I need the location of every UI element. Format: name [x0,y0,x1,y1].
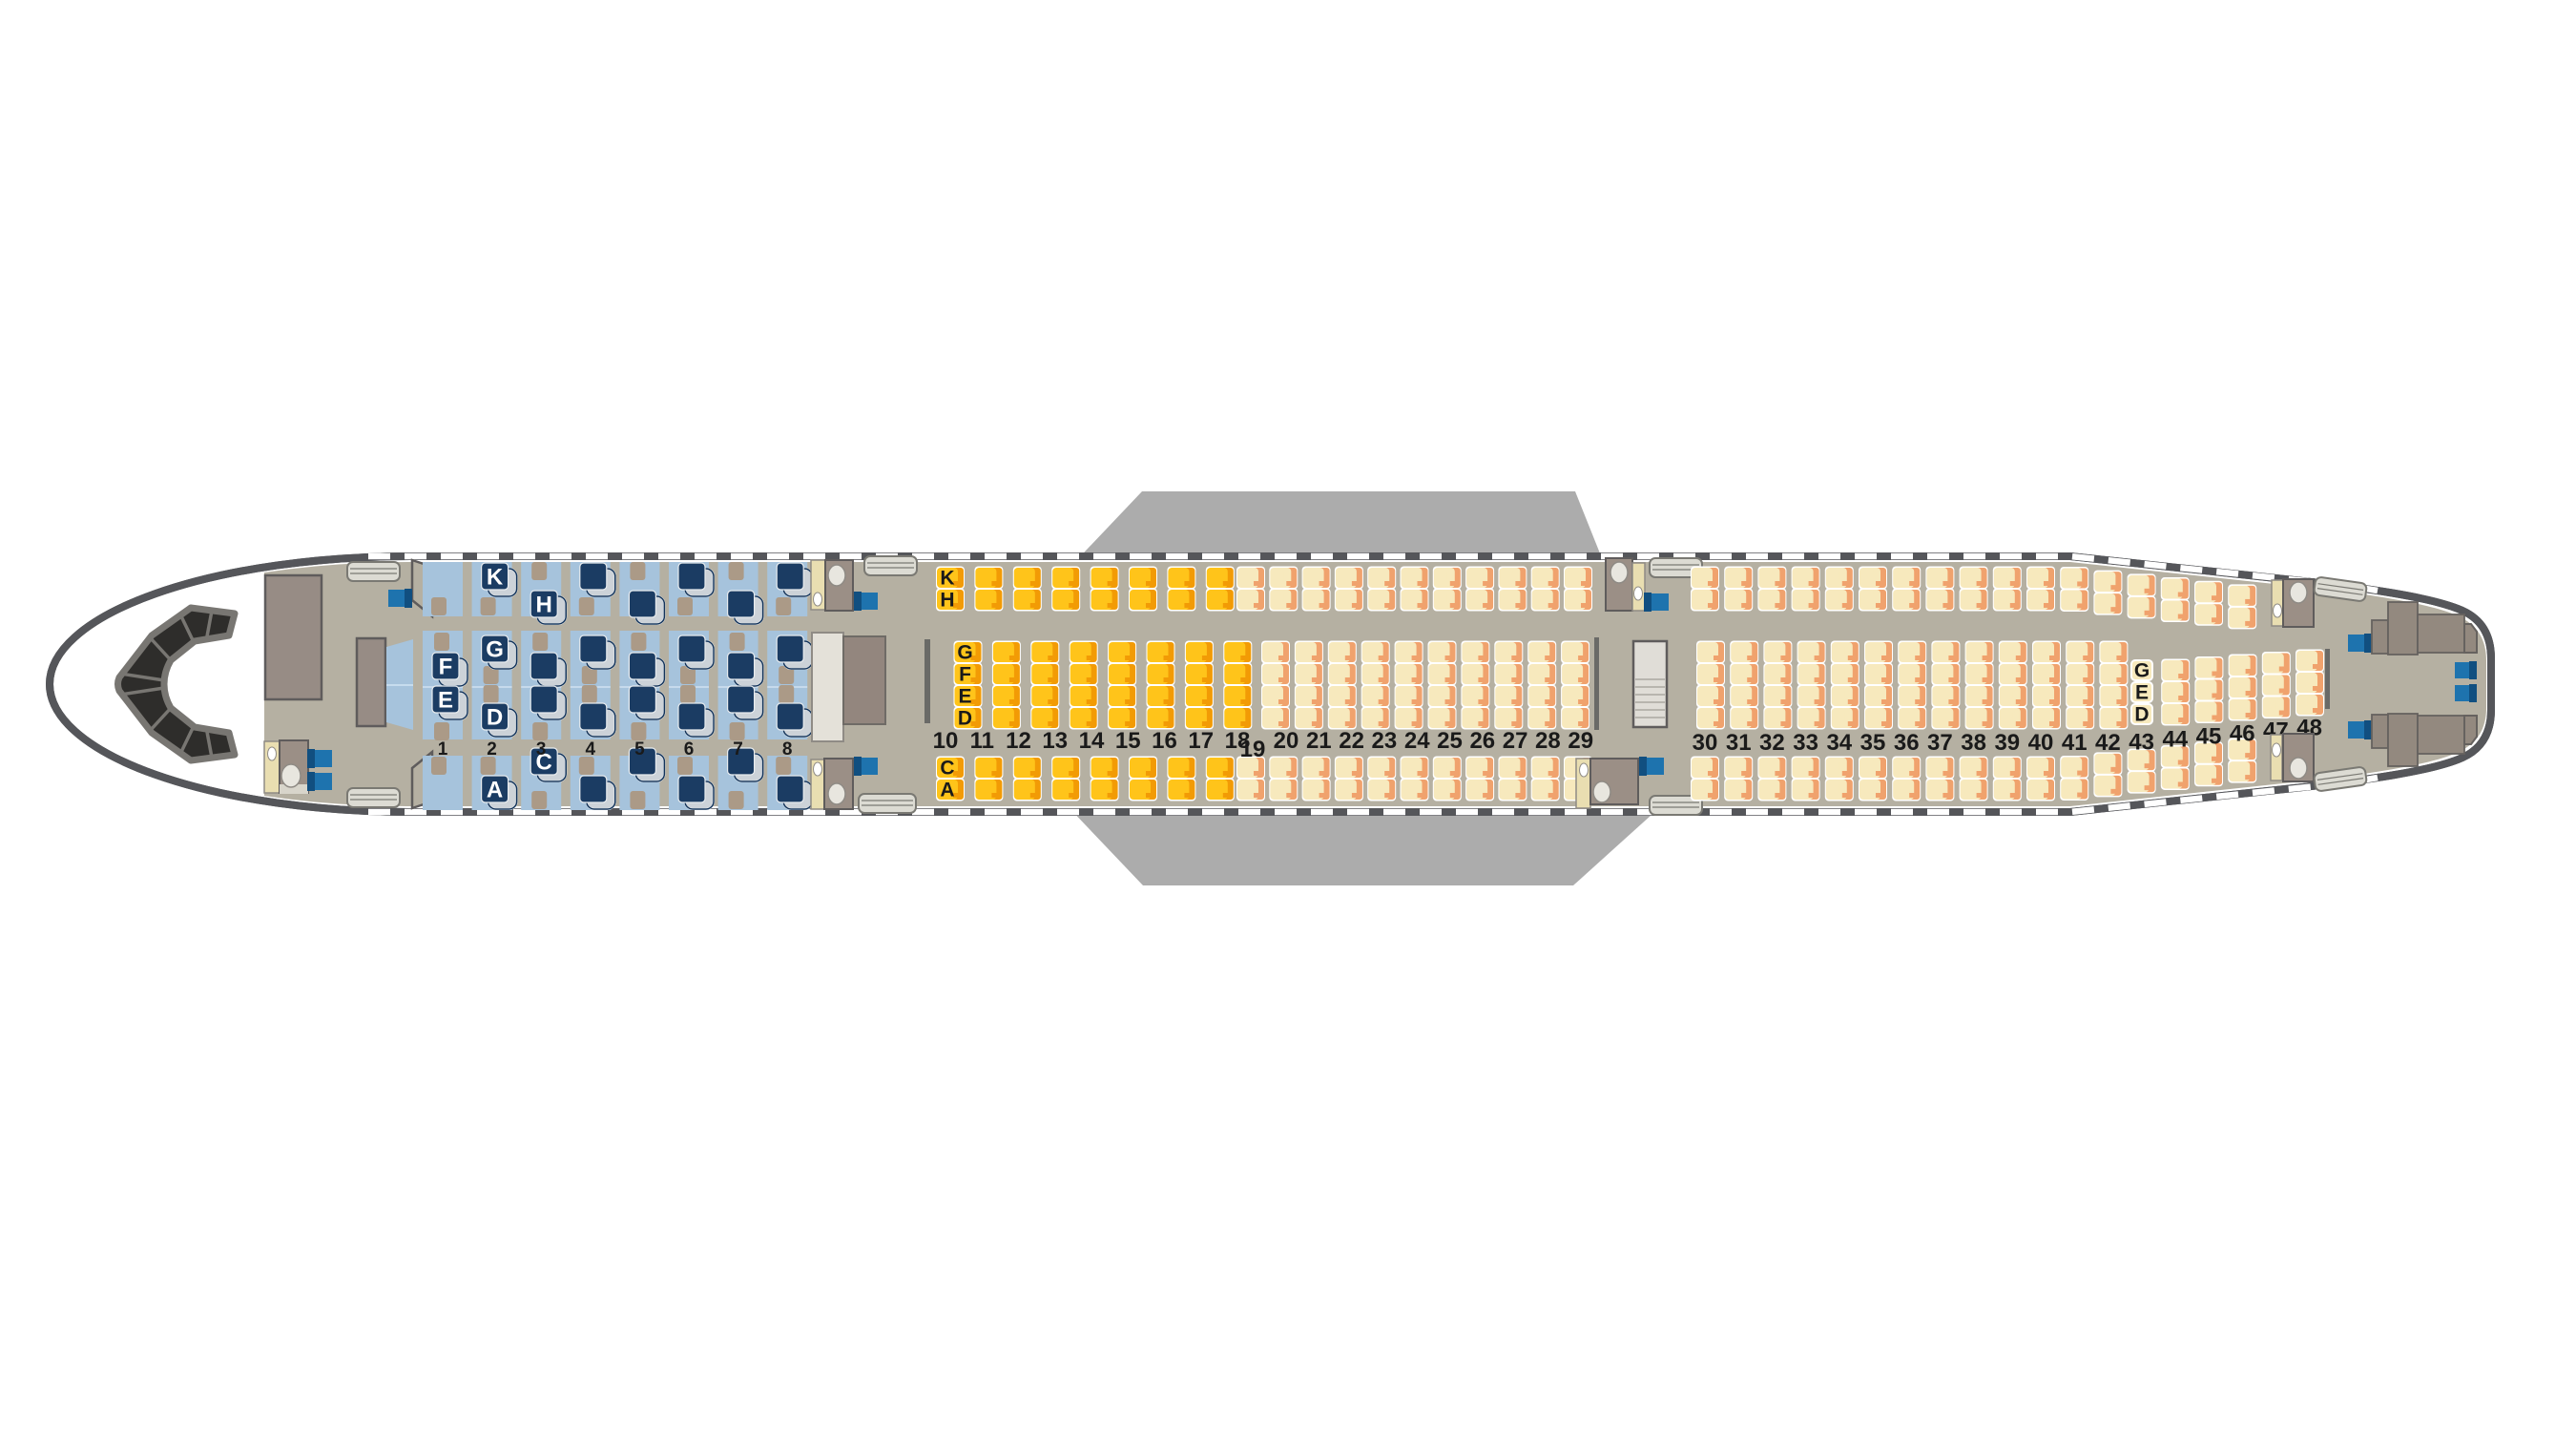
svg-text:6: 6 [684,739,695,760]
svg-text:15: 15 [1115,728,1141,754]
svg-text:G: G [2134,660,2150,682]
svg-text:E: E [2135,682,2149,704]
svg-text:4: 4 [586,739,596,760]
svg-text:C: C [940,758,954,780]
svg-text:35: 35 [1860,730,1886,756]
svg-text:33: 33 [1793,730,1818,756]
svg-text:23: 23 [1372,728,1398,754]
svg-text:H: H [940,590,954,612]
svg-text:5: 5 [634,739,645,760]
svg-text:H: H [536,593,552,618]
svg-text:D: D [958,708,972,730]
svg-text:16: 16 [1152,728,1177,754]
svg-text:A: A [487,778,503,803]
svg-text:A: A [940,780,954,801]
svg-text:F: F [959,664,971,686]
svg-text:26: 26 [1469,728,1495,754]
svg-text:K: K [940,568,954,590]
svg-text:44: 44 [2162,727,2188,753]
svg-text:11: 11 [970,728,994,754]
svg-text:27: 27 [1503,728,1528,754]
svg-text:K: K [487,565,504,591]
svg-text:7: 7 [733,739,743,760]
svg-text:G: G [957,642,972,664]
svg-text:30: 30 [1693,730,1718,756]
svg-text:20: 20 [1274,728,1299,754]
svg-text:46: 46 [2230,721,2255,747]
svg-text:3: 3 [536,739,547,760]
svg-text:43: 43 [2129,730,2154,756]
svg-text:31: 31 [1726,730,1752,756]
svg-text:22: 22 [1339,728,1364,754]
svg-text:41: 41 [2062,730,2088,756]
svg-text:40: 40 [2028,730,2054,756]
svg-text:28: 28 [1535,728,1561,754]
svg-text:17: 17 [1188,728,1214,754]
svg-text:24: 24 [1404,728,1430,754]
svg-text:E: E [438,688,453,714]
svg-text:29: 29 [1568,728,1593,754]
svg-text:1: 1 [438,739,448,760]
svg-text:E: E [958,686,971,708]
svg-text:38: 38 [1961,730,1986,756]
svg-text:13: 13 [1042,728,1068,754]
svg-text:21: 21 [1306,728,1332,754]
svg-text:10: 10 [933,728,959,754]
svg-text:G: G [486,637,504,663]
svg-text:36: 36 [1894,730,1920,756]
svg-text:25: 25 [1437,728,1463,754]
svg-text:D: D [487,705,503,731]
svg-text:14: 14 [1079,728,1105,754]
svg-text:2: 2 [487,739,497,760]
svg-text:8: 8 [782,739,793,760]
svg-text:39: 39 [1994,730,2020,756]
svg-text:D: D [2134,704,2149,726]
svg-text:32: 32 [1759,730,1785,756]
svg-text:37: 37 [1927,730,1953,756]
svg-text:34: 34 [1826,730,1852,756]
svg-text:F: F [439,655,453,680]
svg-text:45: 45 [2196,724,2222,750]
svg-text:12: 12 [1006,728,1031,754]
svg-text:19: 19 [1240,737,1266,762]
svg-text:42: 42 [2095,730,2121,756]
